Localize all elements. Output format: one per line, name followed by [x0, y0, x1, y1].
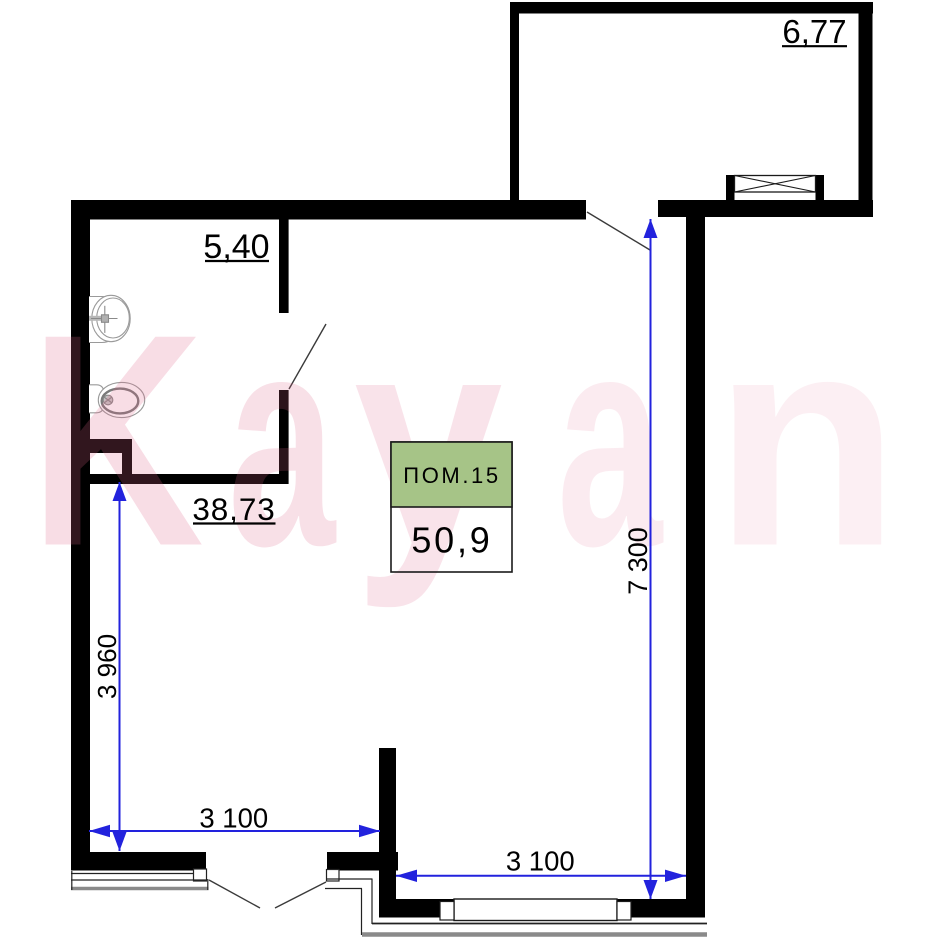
svg-text:3 100: 3 100 — [199, 803, 268, 834]
svg-text:50,9: 50,9 — [411, 520, 492, 561]
svg-text:a: a — [228, 272, 337, 609]
svg-text:3 100: 3 100 — [506, 845, 575, 876]
svg-text:6,77: 6,77 — [782, 13, 846, 50]
svg-text:K: K — [30, 271, 204, 609]
svg-text:n: n — [713, 272, 900, 609]
svg-text:3 960: 3 960 — [92, 634, 122, 699]
svg-text:ПОМ.15: ПОМ.15 — [403, 463, 500, 488]
svg-text:7 300: 7 300 — [623, 527, 653, 595]
svg-text:38,73: 38,73 — [192, 491, 275, 527]
